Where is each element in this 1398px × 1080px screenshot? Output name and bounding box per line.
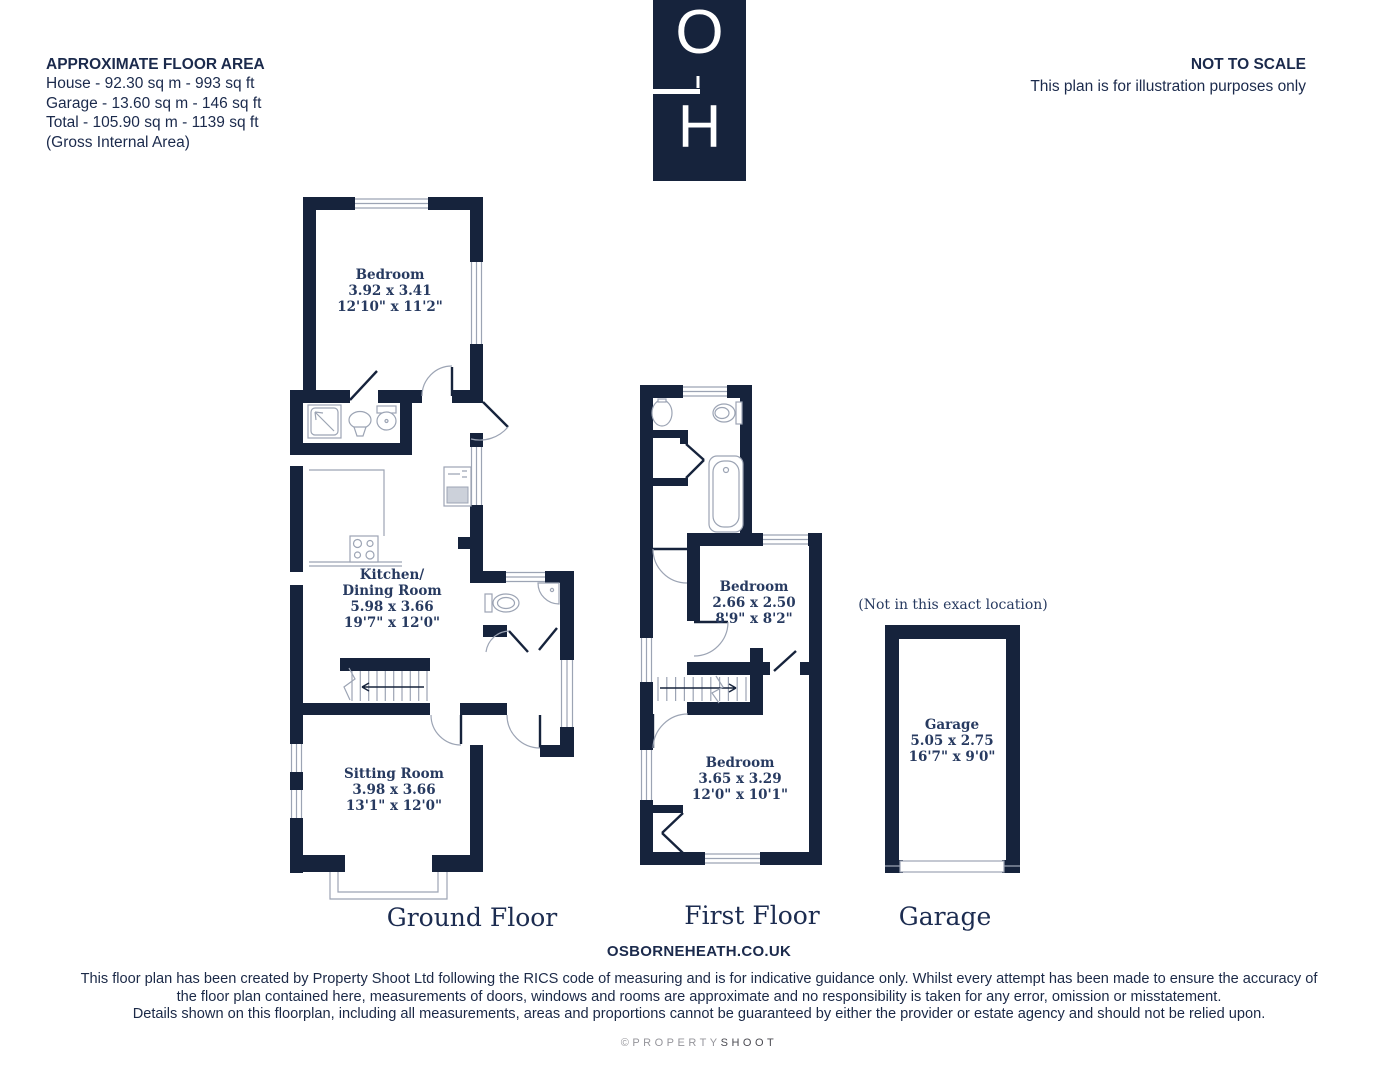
ground-floor-title: Ground Floor — [387, 903, 558, 932]
room-label-kitchen-dining: Kitchen/ Dining Room 5.98 x 3.66 19'7" x… — [342, 567, 441, 631]
not-to-scale-subtitle: This plan is for illustration purposes o… — [1030, 78, 1306, 96]
room-dim-imperial: 13'1" x 12'0" — [344, 798, 444, 814]
room-label-bedroom-rear: Bedroom 2.66 x 2.50 8'9" x 8'2" — [712, 579, 795, 627]
room-dim-metric: 5.05 x 2.75 — [909, 733, 996, 749]
sink-icon — [349, 412, 371, 437]
disclaimer-line: Details shown on this floorplan, includi… — [0, 1006, 1398, 1024]
garage-door — [885, 861, 1020, 872]
disclaimer-text: This floor plan has been created by Prop… — [0, 971, 1398, 1024]
garage-location-note: (Not in this exact location) — [858, 597, 1047, 613]
not-to-scale-block: NOT TO SCALE This plan is for illustrati… — [1030, 56, 1306, 96]
room-label-garage: Garage 5.05 x 2.75 16'7" x 9'0" — [909, 717, 996, 765]
room-dim-imperial: 19'7" x 12'0" — [342, 615, 441, 631]
bath-icon — [709, 456, 743, 532]
room-dim-metric: 3.92 x 3.41 — [337, 283, 443, 299]
corner-sink-icon — [538, 583, 559, 604]
fridge-icon — [444, 467, 471, 506]
logo-letter-h: H — [678, 97, 721, 157]
room-name: Garage — [909, 717, 996, 733]
first-floor-plan — [630, 380, 835, 880]
logo-letter-o: O — [675, 2, 723, 64]
room-name: Sitting Room — [344, 766, 444, 782]
garage-title: Garage — [899, 902, 992, 931]
room-name: Kitchen/ — [342, 567, 441, 583]
room-dim-imperial: 16'7" x 9'0" — [909, 749, 996, 765]
shower-icon — [308, 405, 341, 438]
website-url: OSBORNEHEATH.CO.UK — [607, 943, 791, 960]
stairs — [658, 676, 746, 703]
room-dim-imperial: 12'0" x 10'1" — [692, 787, 788, 803]
disclaimer-line: This floor plan has been created by Prop… — [0, 971, 1398, 989]
room-dim-imperial: 8'9" x 8'2" — [712, 611, 795, 627]
floor-area-gia: (Gross Internal Area) — [46, 133, 265, 153]
room-name: Bedroom — [692, 755, 788, 771]
logo-divider-tick — [697, 76, 700, 88]
room-name: Bedroom — [337, 267, 443, 283]
bay-window — [330, 872, 447, 899]
toilet-icon — [713, 402, 742, 424]
toilet-icon — [377, 406, 396, 430]
floorplan-page: APPROXIMATE FLOOR AREA House - 92.30 sq … — [0, 0, 1398, 1080]
propertyshoot-credit: ©PROPERTYSHOOT — [621, 1037, 778, 1049]
room-dim-metric: 5.98 x 3.66 — [342, 599, 441, 615]
room-dim-metric: 2.66 x 2.50 — [712, 595, 795, 611]
hob-icon — [350, 536, 378, 562]
first-floor-title: First Floor — [684, 901, 820, 930]
room-dim-metric: 3.65 x 3.29 — [692, 771, 788, 787]
sink-icon — [652, 399, 672, 426]
room-label-sitting-room: Sitting Room 3.98 x 3.66 13'1" x 12'0" — [344, 766, 444, 814]
floor-area-total: Total - 105.90 sq m - 1139 sq ft — [46, 113, 265, 133]
floor-area-title: APPROXIMATE FLOOR AREA — [46, 56, 265, 74]
wc-toilet-icon — [485, 594, 519, 612]
room-label-bedroom-ground: Bedroom 3.92 x 3.41 12'10" x 11'2" — [337, 267, 443, 315]
floor-area-garage: Garage - 13.60 sq m - 146 sq ft — [46, 94, 265, 114]
room-dim-metric: 3.98 x 3.66 — [344, 782, 444, 798]
stairs — [344, 668, 427, 701]
floor-area-house: House - 92.30 sq m - 993 sq ft — [46, 74, 265, 94]
room-dim-imperial: 12'10" x 11'2" — [337, 299, 443, 315]
room-name: Bedroom — [712, 579, 795, 595]
disclaimer-line: the floor plan contained here, measureme… — [0, 989, 1398, 1007]
approximate-floor-area-block: APPROXIMATE FLOOR AREA House - 92.30 sq … — [46, 56, 265, 152]
room-name: Dining Room — [342, 583, 441, 599]
room-label-bedroom-front: Bedroom 3.65 x 3.29 12'0" x 10'1" — [692, 755, 788, 803]
osborne-heath-logo: O H — [653, 0, 746, 181]
credit-suffix: SHOOT — [721, 1037, 778, 1049]
credit-prefix: ©PROPERTY — [621, 1037, 721, 1049]
not-to-scale-title: NOT TO SCALE — [1030, 56, 1306, 74]
